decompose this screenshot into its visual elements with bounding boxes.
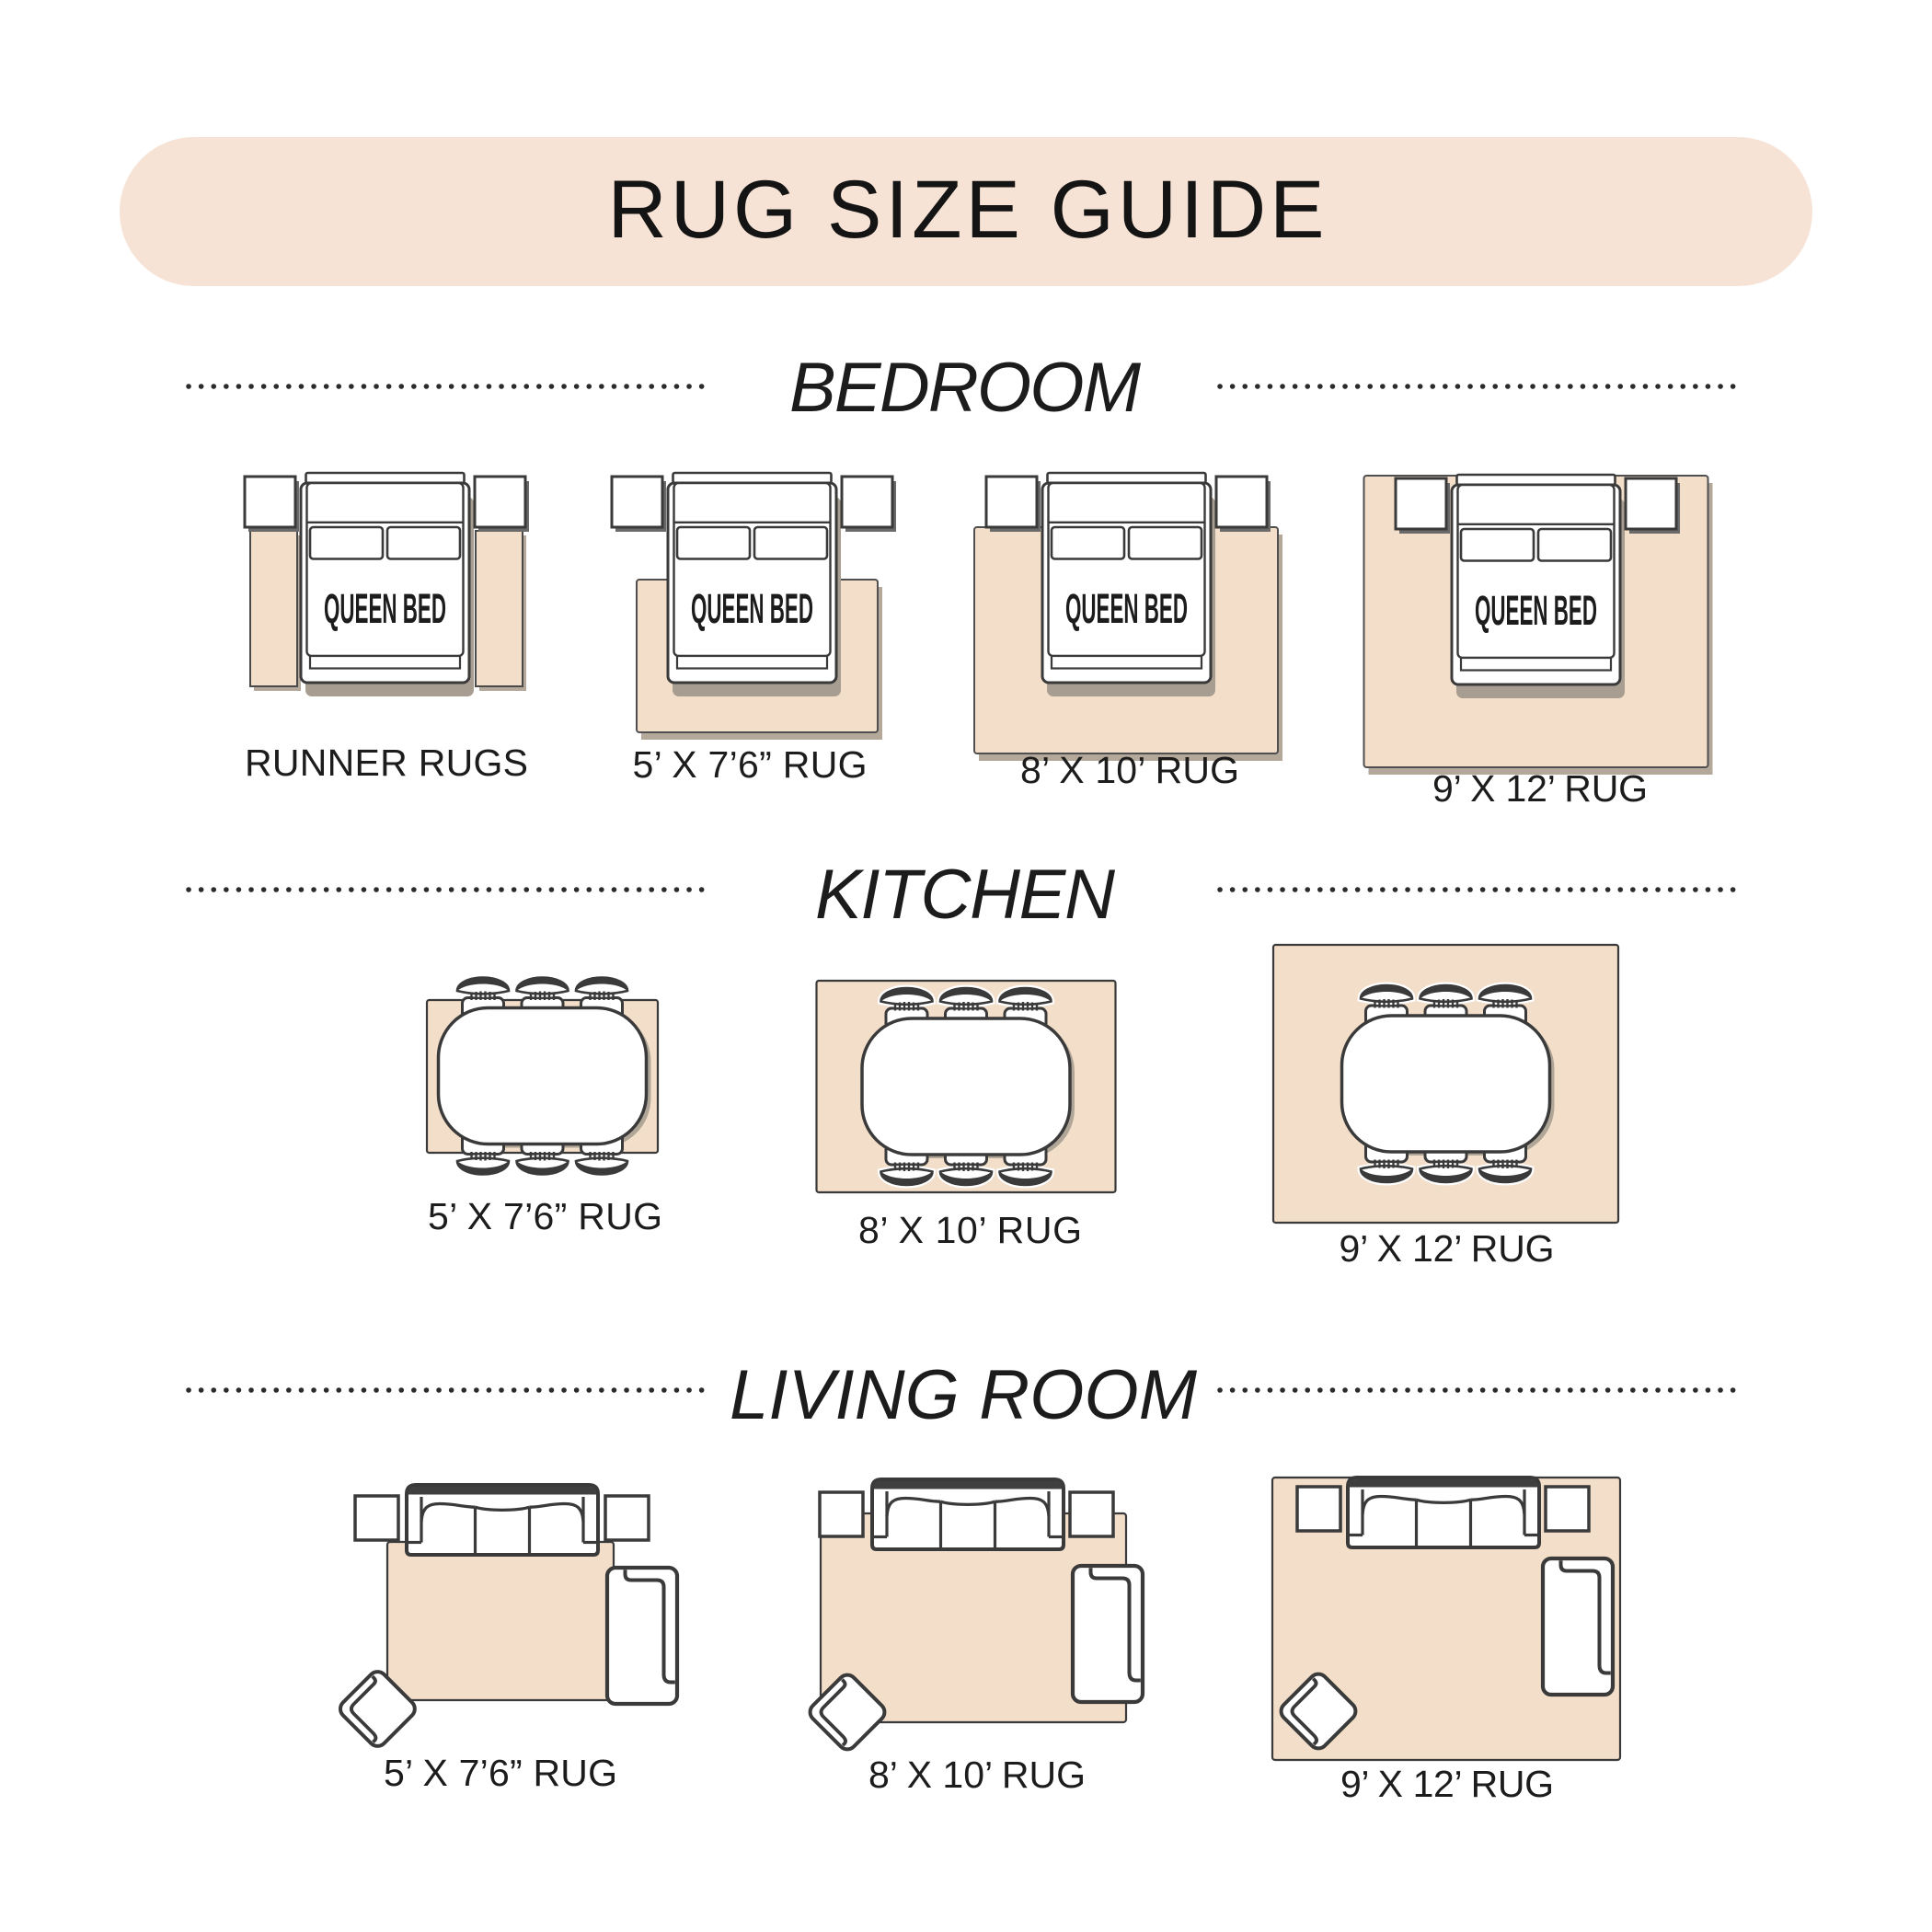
svg-text:9’ X 12’ RUG: 9’ X 12’ RUG: [1340, 1227, 1555, 1270]
svg-text:KITCHEN: KITCHEN: [815, 856, 1115, 934]
svg-text:5’ X 7’6” RUG: 5’ X 7’6” RUG: [633, 743, 868, 786]
svg-text:9’ X 12’ RUG: 9’ X 12’ RUG: [1340, 1763, 1554, 1805]
svg-text:RUNNER RUGS: RUNNER RUGS: [245, 742, 528, 784]
svg-text:8’ X 10’ RUG: 8’ X 10’ RUG: [868, 1754, 1086, 1796]
svg-text:RUG SIZE GUIDE: RUG SIZE GUIDE: [608, 163, 1325, 255]
svg-text:BEDROOM: BEDROOM: [789, 349, 1142, 427]
svg-text:8’ X 10’ RUG: 8’ X 10’ RUG: [1020, 749, 1239, 791]
svg-text:5’ X 7’6” RUG: 5’ X 7’6” RUG: [428, 1195, 662, 1237]
svg-text:9’ X 12’ RUG: 9’ X 12’ RUG: [1432, 767, 1648, 810]
svg-text:5’ X 7’6” RUG: 5’ X 7’6” RUG: [384, 1752, 617, 1794]
svg-text:8’ X 10’ RUG: 8’ X 10’ RUG: [858, 1209, 1082, 1251]
svg-text:LIVING ROOM: LIVING ROOM: [730, 1356, 1198, 1434]
